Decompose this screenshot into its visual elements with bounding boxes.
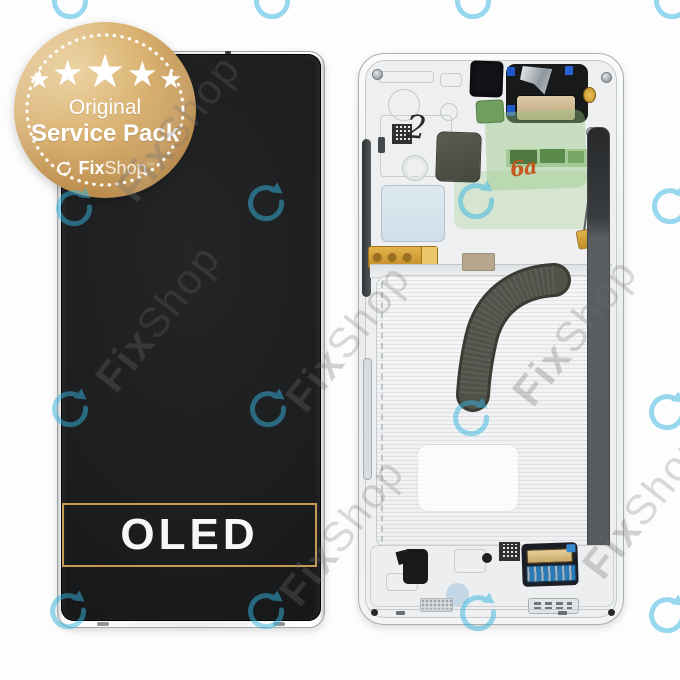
bottom-connector-socket — [528, 598, 579, 614]
star-icon: ★ — [127, 57, 158, 92]
star-icon: ★ — [159, 66, 182, 92]
star-rating: ★ ★ ★ ★ ★ — [14, 48, 196, 94]
display-assembly-back: 2 6a — [358, 53, 624, 625]
trademark-symbol: ™ — [147, 161, 155, 170]
embossed-detail — [454, 549, 486, 573]
circular-arrow-watermark-icon — [643, 592, 680, 640]
corner-screw — [371, 609, 378, 616]
star-icon: ★ — [84, 48, 125, 94]
antenna-tick — [558, 611, 567, 615]
bottom-antenna-notch — [273, 622, 285, 626]
oled-label: OLED — [120, 513, 258, 557]
circular-arrow-watermark-icon — [646, 183, 680, 231]
microphone-hole — [482, 553, 492, 563]
circular-arrow-watermark-icon — [643, 389, 680, 437]
bottom-speaker — [403, 549, 428, 584]
circular-arrow-watermark-icon — [449, 0, 497, 26]
circular-arrow-watermark-icon — [648, 0, 680, 26]
bottom-antenna-notch — [97, 622, 109, 626]
charging-port-connector — [521, 542, 578, 587]
blue-component — [566, 544, 575, 552]
bottom-frame-line — [370, 609, 612, 610]
main-flex-cable — [358, 53, 624, 625]
original-service-pack-badge: ★ ★ ★ ★ ★ Original Service Pack FixShop™ — [14, 22, 196, 198]
corner-screw — [608, 609, 615, 616]
qr-code-sticker — [499, 542, 520, 561]
circular-arrow-icon — [55, 160, 73, 178]
brand-fix: Fix — [78, 158, 104, 178]
oled-label-box: OLED — [62, 503, 317, 567]
connector-blue-band — [526, 564, 577, 583]
badge-brand: FixShop™ — [14, 158, 196, 179]
star-icon: ★ — [52, 56, 83, 91]
brand-shop: Shop — [104, 158, 146, 178]
antenna-tick — [396, 611, 405, 615]
badge-subtitle: Service Pack — [14, 120, 196, 148]
product-image: OLED — [0, 0, 680, 680]
circular-arrow-watermark-icon — [248, 0, 296, 26]
star-icon: ★ — [28, 66, 51, 92]
badge-title: Original — [14, 96, 196, 120]
